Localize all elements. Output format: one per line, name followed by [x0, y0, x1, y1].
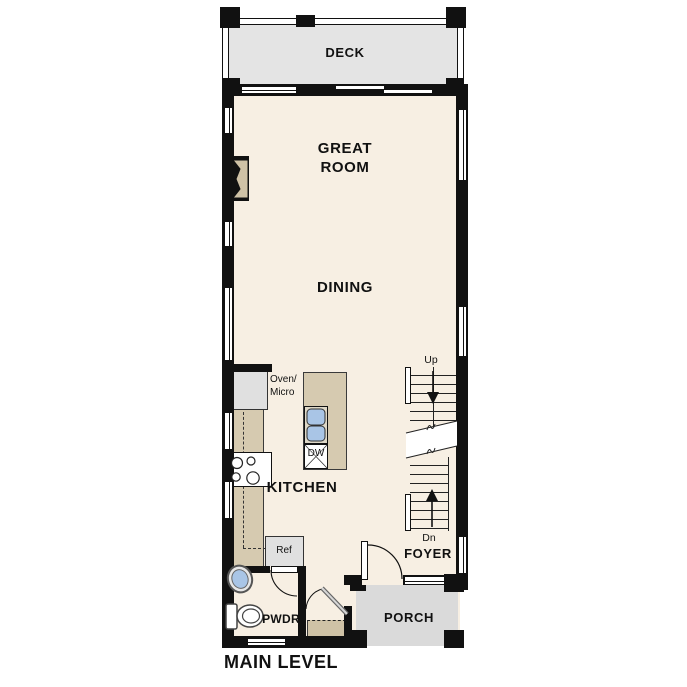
window — [224, 287, 233, 361]
refrigerator-label: Ref — [276, 545, 292, 556]
stairs-rail-lower — [405, 494, 411, 531]
sliding-door-panel — [383, 89, 433, 94]
wall-kitchen-stub — [222, 364, 272, 372]
great-room-label-line1: GREAT — [318, 140, 372, 157]
stairs-lower-flight — [410, 457, 449, 531]
window — [247, 638, 286, 646]
window — [458, 109, 467, 181]
window — [224, 412, 233, 450]
window — [224, 221, 233, 247]
sink-surround — [304, 406, 328, 444]
window — [458, 306, 467, 357]
foyer-label: FOYER — [404, 546, 452, 561]
deck-post-mid — [296, 15, 315, 27]
front-door-opening — [362, 575, 403, 585]
oven-micro-box — [228, 371, 268, 410]
wall-closet-right — [344, 606, 352, 648]
dishwasher-label: DW — [308, 448, 325, 459]
sidelite-window — [404, 576, 445, 585]
sliding-door-panel — [335, 85, 385, 90]
plan-title: MAIN LEVEL — [224, 652, 338, 673]
deck-post-topleft — [220, 7, 240, 28]
front-door-leaf — [361, 541, 368, 580]
oven-micro-label-line2: Micro — [270, 387, 294, 398]
dining-label: DINING — [317, 279, 373, 296]
porch-label: PORCH — [384, 610, 434, 625]
wall-powder-top — [222, 566, 272, 573]
window — [241, 86, 297, 94]
fireplace-box — [222, 156, 249, 201]
deck-rail-left — [222, 26, 229, 84]
window — [458, 536, 467, 574]
cooktop — [228, 452, 272, 487]
powder-door-leaf — [271, 566, 298, 573]
deck-label: DECK — [325, 45, 364, 60]
wall-bottom-left — [222, 636, 362, 648]
stairs-down-label: Dn — [422, 532, 435, 544]
floor-plan: DECK GREAT ROOM DINING KITCHEN FOYER POR… — [0, 0, 687, 687]
deck-post-topright — [446, 7, 466, 28]
window — [224, 481, 233, 519]
counter-dash-line-h — [243, 548, 266, 549]
kitchen-label: KITCHEN — [267, 479, 338, 496]
great-room-label-line2: ROOM — [320, 159, 369, 176]
deck-rail-right — [457, 26, 464, 84]
stairs-divider — [433, 367, 434, 429]
powder-label: PWDR — [262, 612, 300, 626]
oven-micro-label-line1: Oven/ — [270, 374, 297, 385]
stairs-rail-upper — [405, 367, 411, 404]
porch-post-bottomright — [444, 630, 464, 648]
deck-rail-top — [238, 18, 448, 25]
window — [224, 107, 233, 134]
stairs-up-label: Up — [424, 354, 437, 366]
